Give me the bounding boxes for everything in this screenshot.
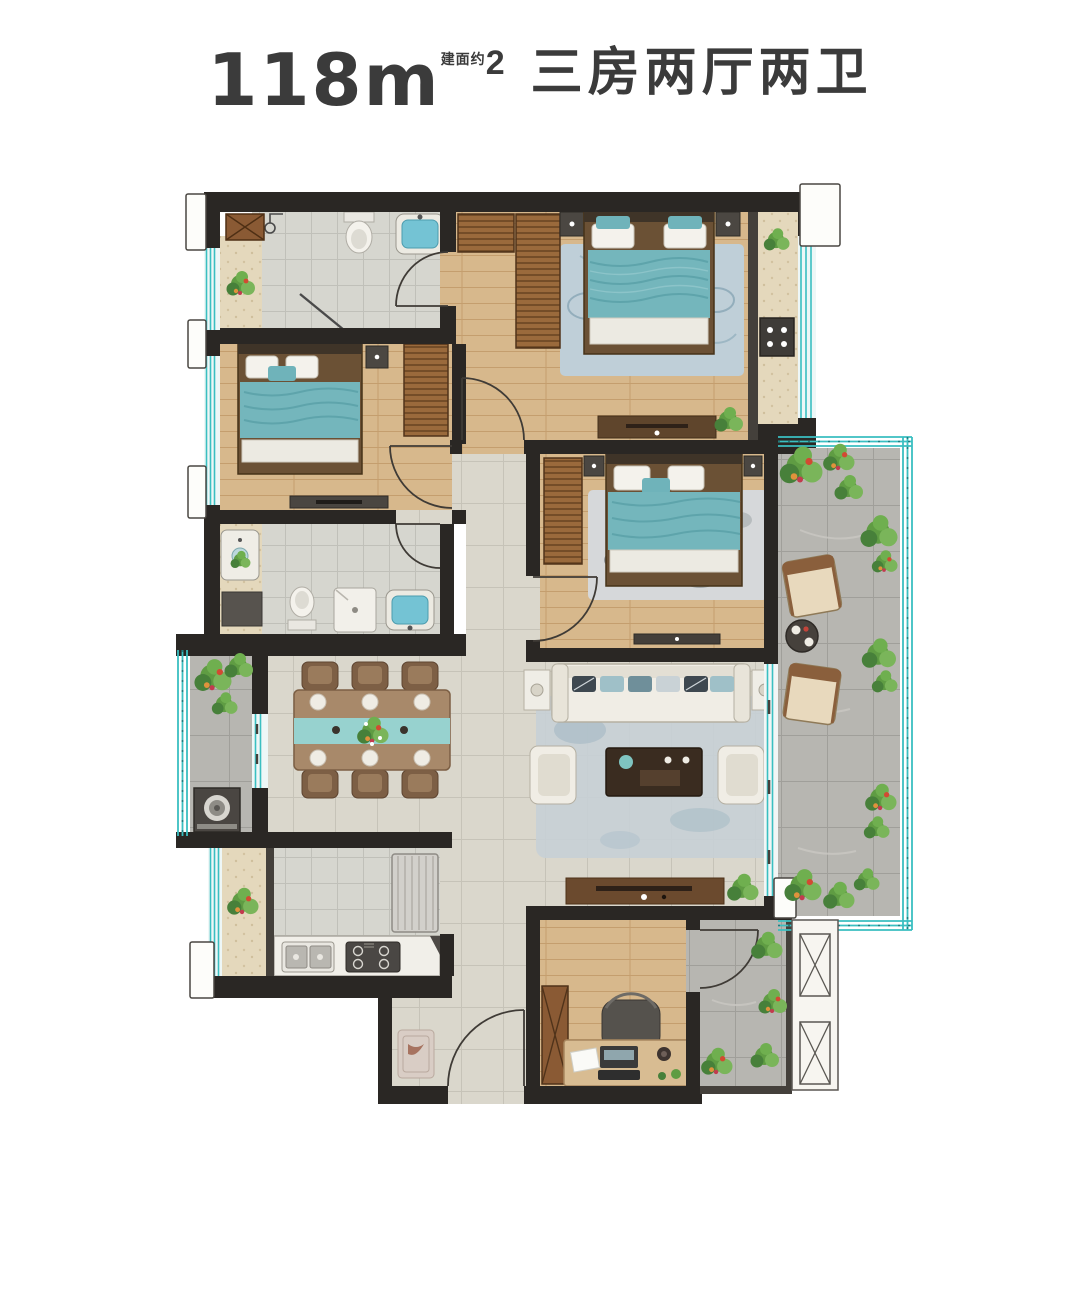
terrace-railing-right	[903, 437, 912, 930]
duvet	[240, 382, 360, 438]
entry	[398, 1030, 434, 1078]
plate	[362, 750, 378, 766]
hallway-floor	[466, 454, 526, 656]
bath-cabinet	[222, 592, 262, 626]
pier	[774, 878, 796, 918]
sofa	[552, 664, 750, 722]
bed	[606, 454, 742, 586]
plate	[362, 694, 378, 710]
gas-stove	[346, 942, 400, 972]
kitchen-bay-ledge	[222, 848, 266, 976]
plate	[414, 750, 430, 766]
lounge-chair	[782, 663, 841, 726]
pillow-teal	[668, 216, 702, 229]
wardrobe	[458, 214, 514, 252]
lounge-chair	[782, 554, 843, 618]
plate	[310, 750, 326, 766]
pillow-teal	[596, 216, 630, 229]
washing-machine	[194, 788, 240, 832]
left-balcony	[194, 788, 240, 832]
kitchen-sink	[282, 942, 334, 972]
pier	[188, 320, 206, 368]
fridge	[392, 854, 438, 932]
bathroom-1-bay-ledge	[220, 236, 262, 332]
master-bed	[584, 210, 714, 354]
wardrobe	[544, 458, 582, 564]
terrace-table	[786, 620, 818, 652]
dining-table	[294, 690, 450, 770]
ac-platform	[792, 920, 838, 1090]
pier	[188, 466, 206, 518]
floor-plan	[0, 0, 1080, 1297]
toilet-tank	[288, 620, 316, 630]
floor-plan-image	[0, 0, 1080, 1292]
wardrobe	[404, 344, 448, 436]
plate	[310, 694, 326, 710]
left-balcony-railing	[178, 650, 187, 836]
wardrobe	[516, 214, 560, 348]
desk	[564, 1040, 690, 1086]
pillow-teal	[642, 478, 670, 494]
pillow	[668, 466, 704, 490]
pier	[186, 194, 206, 250]
papers	[570, 1048, 599, 1072]
pier	[800, 184, 840, 246]
ac-unit	[760, 318, 794, 356]
garden-patio-floor	[700, 920, 792, 1086]
bed	[238, 344, 362, 474]
pier	[190, 942, 214, 998]
pillow-teal	[268, 366, 296, 381]
dining-area	[294, 662, 450, 798]
plate	[414, 694, 430, 710]
coffee-table	[606, 748, 702, 796]
